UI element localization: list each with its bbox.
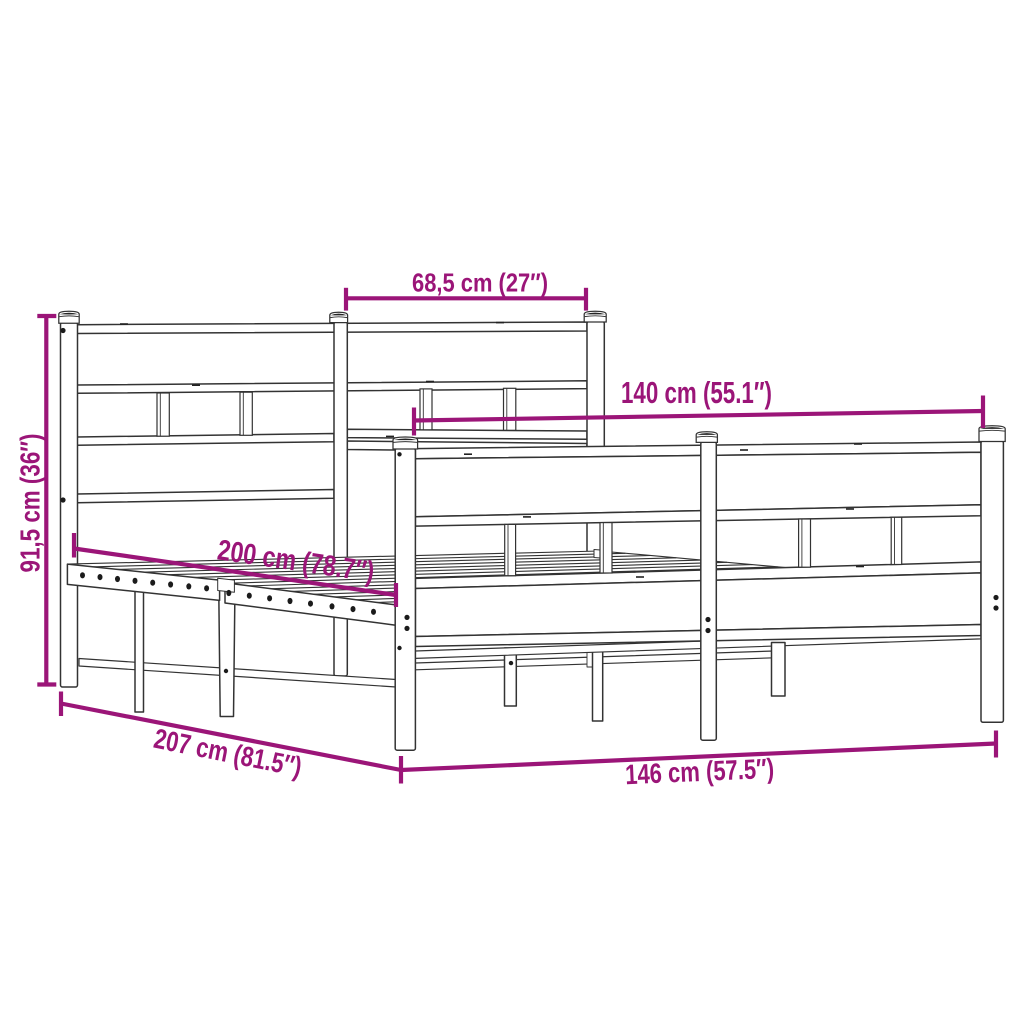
svg-text:140 cm (55.1″): 140 cm (55.1″) <box>621 375 772 410</box>
svg-text:146 cm (57.5″): 146 cm (57.5″) <box>624 753 774 790</box>
svg-text:68,5 cm (27″): 68,5 cm (27″) <box>412 268 548 298</box>
svg-text:91,5 cm (36″): 91,5 cm (36″) <box>15 434 46 573</box>
